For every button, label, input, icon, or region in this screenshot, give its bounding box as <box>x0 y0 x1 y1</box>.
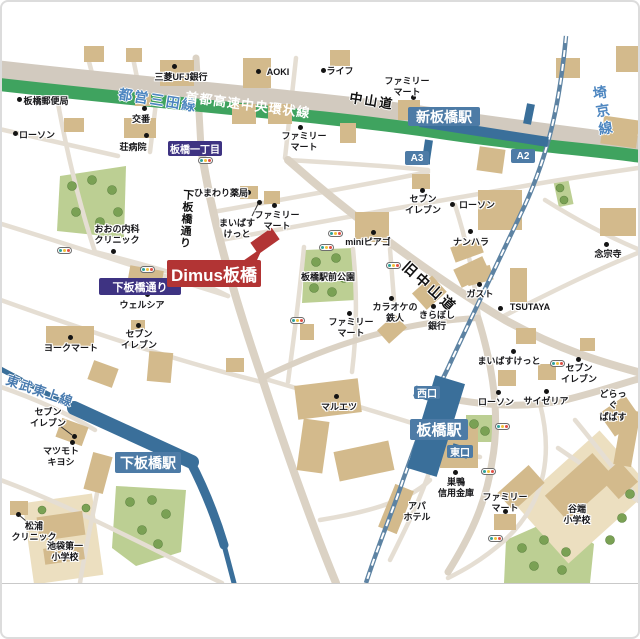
poi-familymart-southeast: ファミリー マート <box>482 492 527 515</box>
poi-dot <box>544 389 549 394</box>
poi-maibasuketto-center: まいばす けっと <box>219 218 255 241</box>
poi-nenshuji-temple: 念宗寺 <box>594 249 621 260</box>
poi-mitsubishi-ufj-bank: 三菱UFJ銀行 <box>154 72 207 83</box>
poi-so-hospital: 荘病院 <box>119 142 146 153</box>
poi-yabata-elementary-school: 谷端 小学校 <box>563 504 590 527</box>
poi-dot <box>298 125 303 130</box>
poi-welcia: ウェルシア <box>119 300 164 311</box>
poi-dot <box>468 229 473 234</box>
poi-dot <box>334 394 339 399</box>
traffic-signal-icon <box>198 157 213 164</box>
poi-kiraboshi-bank: きらぼし 銀行 <box>419 310 455 333</box>
traffic-signal-icon <box>140 266 155 273</box>
poi-dot <box>70 440 75 445</box>
poi-dot <box>16 512 21 517</box>
poi-dot <box>144 133 149 138</box>
poi-dot <box>136 323 141 328</box>
poi-apa-hotel: アパ ホテル <box>403 501 430 524</box>
poi-familymart-itchome: ファミリー マート <box>281 131 326 154</box>
poi-maruetsu: マルエツ <box>321 402 357 413</box>
poi-mini-piago: miniピアゴ <box>345 237 391 248</box>
poi-dot <box>68 335 73 340</box>
poi-dot <box>272 203 277 208</box>
poi-dot <box>371 230 376 235</box>
poi-dot <box>257 200 262 205</box>
poi-dot <box>498 306 503 311</box>
poi-drug-papasu: どらっぐ ぱぱす <box>600 389 627 423</box>
poi-aoki: AOKI <box>267 67 290 78</box>
poi-dot <box>576 357 581 362</box>
poi-life: ライフ <box>326 66 353 77</box>
shimo-itabashi-station-badge: 下板橋駅 <box>115 452 181 473</box>
poi-dot <box>450 202 455 207</box>
poi-karaoke-tetsujin: カラオケの 鉄人 <box>372 302 417 325</box>
poi-dot <box>604 242 609 247</box>
traffic-signal-icon <box>386 262 401 269</box>
poi-lawson-ne: ローソン <box>459 200 495 211</box>
poi-sugamo-shinkin-bank: 巣鴨 信用金庫 <box>438 477 474 500</box>
traffic-signal-icon <box>290 317 305 324</box>
poi-dot <box>256 69 261 74</box>
poi-dot <box>496 390 501 395</box>
traffic-signal-icon <box>57 247 72 254</box>
itabashi-station-badge: 板橋駅 <box>410 419 468 440</box>
poi-tsutaya: TSUTAYA <box>510 302 550 313</box>
poi-dot <box>477 282 482 287</box>
poi-ikebukuro-daiichi-elementary-school: 池袋第一 小学校 <box>47 541 83 564</box>
poi-dot <box>347 311 352 316</box>
shin-itabashi-station-badge: 新板橋駅 <box>408 107 480 126</box>
poi-dot <box>142 106 147 111</box>
poi-dot <box>431 304 436 309</box>
poi-dot <box>453 470 458 475</box>
traffic-signal-icon <box>550 360 565 367</box>
poi-dot <box>172 64 177 69</box>
west-exit-badge: 西口 <box>414 386 440 399</box>
poi-dot <box>420 188 425 193</box>
poi-koban: 交番 <box>132 114 150 125</box>
poi-nanhara: ナンハラ <box>453 237 489 248</box>
poi-lawson-nw: ローソン <box>19 130 55 141</box>
poi-oono-clinic: おおの内科 クリニック <box>94 224 139 247</box>
poi-familymart-south-park: ファミリー マート <box>328 317 373 340</box>
itabashi-itchome-badge: 板橋一丁目 <box>168 141 222 156</box>
poi-familymart-center: ファミリー マート <box>254 210 299 233</box>
poi-dot <box>13 131 18 136</box>
poi-gusto: ガスト <box>466 289 493 300</box>
poi-himawari-pharmacy: ひまわり薬局 <box>194 188 248 199</box>
poi-matsumoto-kiyoshi: マツモト キヨシ <box>43 446 79 469</box>
exit-a2-badge: A2 <box>511 149 535 163</box>
poi-seven-eleven-midleft: セブン イレブン <box>121 329 157 352</box>
traffic-signal-icon <box>319 244 334 251</box>
traffic-signal-icon <box>488 535 503 542</box>
poi-york-mart: ヨークマート <box>44 343 98 354</box>
traffic-signal-icon <box>495 423 510 430</box>
poi-dot <box>389 296 394 301</box>
poi-seven-eleven-east: セブン イレブン <box>561 363 597 386</box>
traffic-signal-icon <box>328 230 343 237</box>
poi-saizeriya: サイゼリア <box>523 396 568 407</box>
poi-maibasuketto-east: まいばすけっと <box>477 356 540 367</box>
poi-itabashi-post-office: 板橋郵便局 <box>23 96 68 107</box>
map-screenshot: 都営三田線 首都高速中央環状線 中山道 旧中山道 下板橋通り 埼京線 東武東上線… <box>0 0 640 639</box>
map-edge-line <box>0 583 640 584</box>
map-canvas: 都営三田線 首都高速中央環状線 中山道 旧中山道 下板橋通り 埼京線 東武東上線… <box>0 0 640 583</box>
poi-dot <box>111 249 116 254</box>
poi-seven-eleven-ne: セブン イレブン <box>405 194 441 217</box>
poi-familymart-north: ファミリー マート <box>384 76 429 99</box>
poi-seven-eleven-west: セブン イレブン <box>30 407 66 430</box>
poi-lawson-station: ローソン <box>478 397 514 408</box>
east-exit-badge: 東口 <box>447 445 473 458</box>
map-graphics <box>0 0 640 583</box>
poi-dot <box>511 349 516 354</box>
traffic-signal-icon <box>481 468 496 475</box>
poi-dot <box>72 434 77 439</box>
exit-a3-badge: A3 <box>405 151 429 165</box>
poi-dot <box>321 68 326 73</box>
poi-itabashi-ekimae-park: 板橋駅前公園 <box>301 272 355 283</box>
property-label: Dimus板橋 <box>167 260 261 287</box>
poi-dot <box>17 97 22 102</box>
